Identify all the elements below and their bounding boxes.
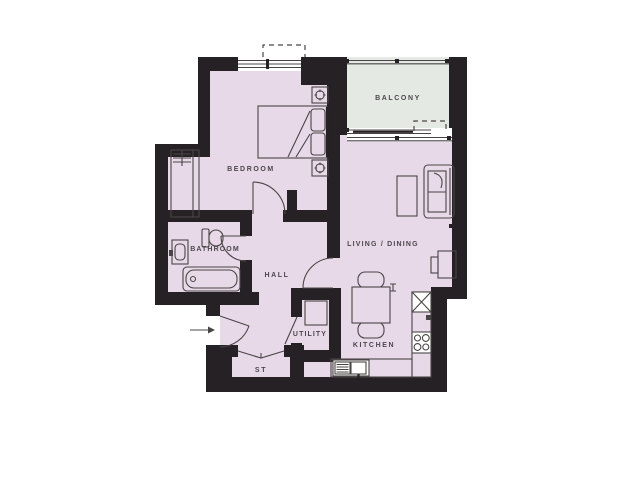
floor-plan: BEDROOM BATHROOM HALL ST UTILITY KITCHEN… — [0, 0, 640, 480]
socket-marker — [426, 315, 431, 320]
bathroom-label: BATHROOM — [190, 246, 240, 253]
boxed-unit-x — [412, 292, 431, 312]
bedroom-window — [238, 57, 301, 71]
bedroom-label: BEDROOM — [227, 166, 275, 173]
utility-label: UTILITY — [293, 331, 327, 338]
balcony-label: BALCONY — [375, 95, 421, 102]
bedroom-window-dashed-overhang — [263, 45, 305, 57]
floor-plan-svg: BEDROOM BATHROOM HALL ST UTILITY KITCHEN… — [0, 0, 640, 480]
storage-label: ST — [255, 367, 267, 374]
four-ring-hob — [412, 332, 431, 353]
hall-label: HALL — [264, 272, 289, 279]
room-living-dining — [327, 131, 460, 299]
living-dining-label: LIVING / DINING — [347, 241, 419, 248]
balcony-sliding-door — [345, 128, 452, 142]
kitchen-label: KITCHEN — [353, 342, 395, 349]
